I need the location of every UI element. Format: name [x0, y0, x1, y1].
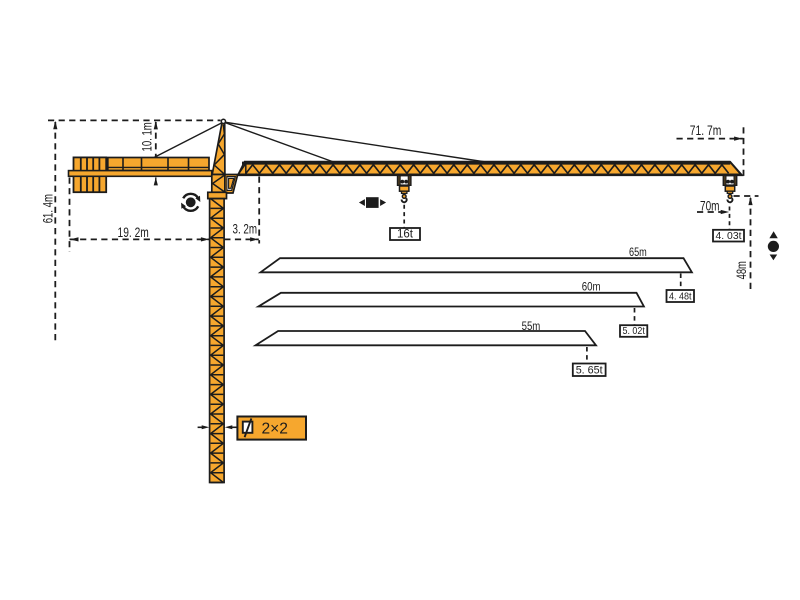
- svg-text:5. 02t: 5. 02t: [623, 325, 645, 337]
- svg-text:10. 1m: 10. 1m: [139, 122, 155, 151]
- svg-text:70m: 70m: [700, 197, 720, 213]
- svg-text:4. 03t: 4. 03t: [716, 230, 742, 242]
- svg-text:3. 2m: 3. 2m: [233, 221, 258, 237]
- svg-text:60m: 60m: [582, 279, 601, 293]
- svg-text:4. 48t: 4. 48t: [669, 290, 692, 302]
- svg-text:5. 65t: 5. 65t: [576, 364, 603, 376]
- svg-text:71. 7m: 71. 7m: [690, 122, 722, 138]
- svg-text:65m: 65m: [629, 245, 647, 259]
- svg-text:19. 2m: 19. 2m: [118, 224, 149, 240]
- svg-text:2×2: 2×2: [262, 420, 289, 437]
- svg-text:16t: 16t: [397, 228, 414, 240]
- svg-text:55m: 55m: [522, 319, 541, 333]
- svg-text:61. 4m: 61. 4m: [40, 194, 56, 223]
- svg-text:48m: 48m: [734, 261, 749, 279]
